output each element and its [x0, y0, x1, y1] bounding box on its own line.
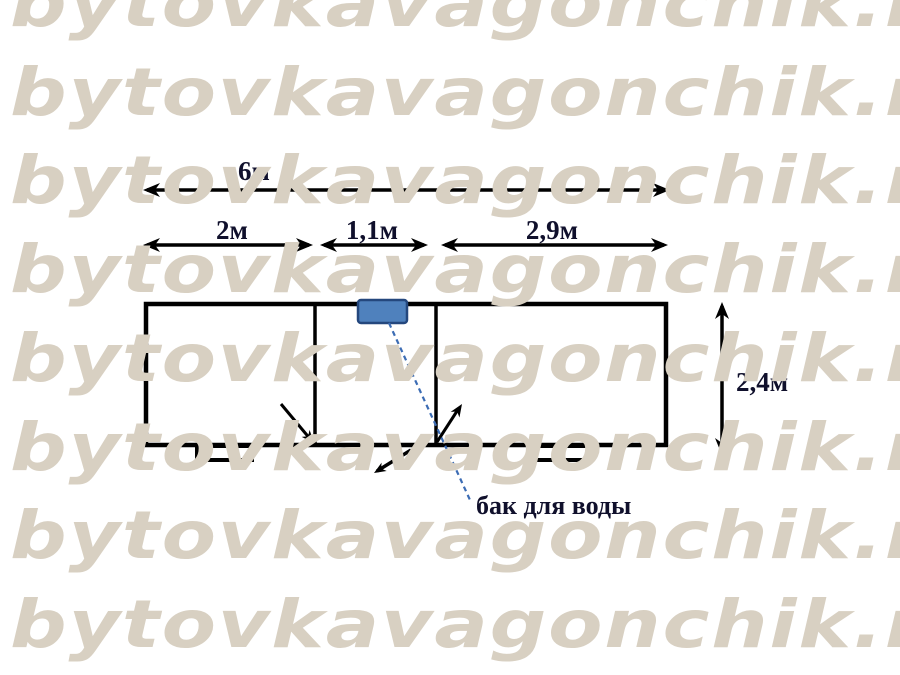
- cabin-plan: [146, 304, 666, 460]
- floor-plan-drawing: 6м 2м 1,1м 2,9м 2,4м: [0, 0, 900, 675]
- dimension-section-right: 2,9м: [441, 215, 668, 252]
- dimension-section-middle: 1,1м: [320, 215, 428, 252]
- dimension-label-section-left: 2м: [216, 215, 248, 245]
- dimension-section-left: 2м: [143, 215, 313, 252]
- water-tank: [358, 300, 407, 323]
- dimension-label-total-width: 6м: [238, 156, 270, 186]
- dimension-label-section-right: 2,9м: [526, 215, 578, 245]
- door-swing-entrance: [377, 450, 411, 471]
- floor-plan-image: 6м 2м 1,1м 2,9м 2,4м: [0, 0, 900, 675]
- water-tank-label: бак для воды: [476, 491, 631, 520]
- dimension-label-section-middle: 1,1м: [346, 215, 398, 245]
- cabin-outline: [146, 304, 666, 445]
- support-foot-right: [534, 446, 590, 460]
- dimension-height: 2,4м: [715, 302, 788, 455]
- support-foot-left: [197, 446, 252, 460]
- dimension-label-height: 2,4м: [736, 367, 788, 397]
- dimension-total-width: 6м: [143, 156, 670, 197]
